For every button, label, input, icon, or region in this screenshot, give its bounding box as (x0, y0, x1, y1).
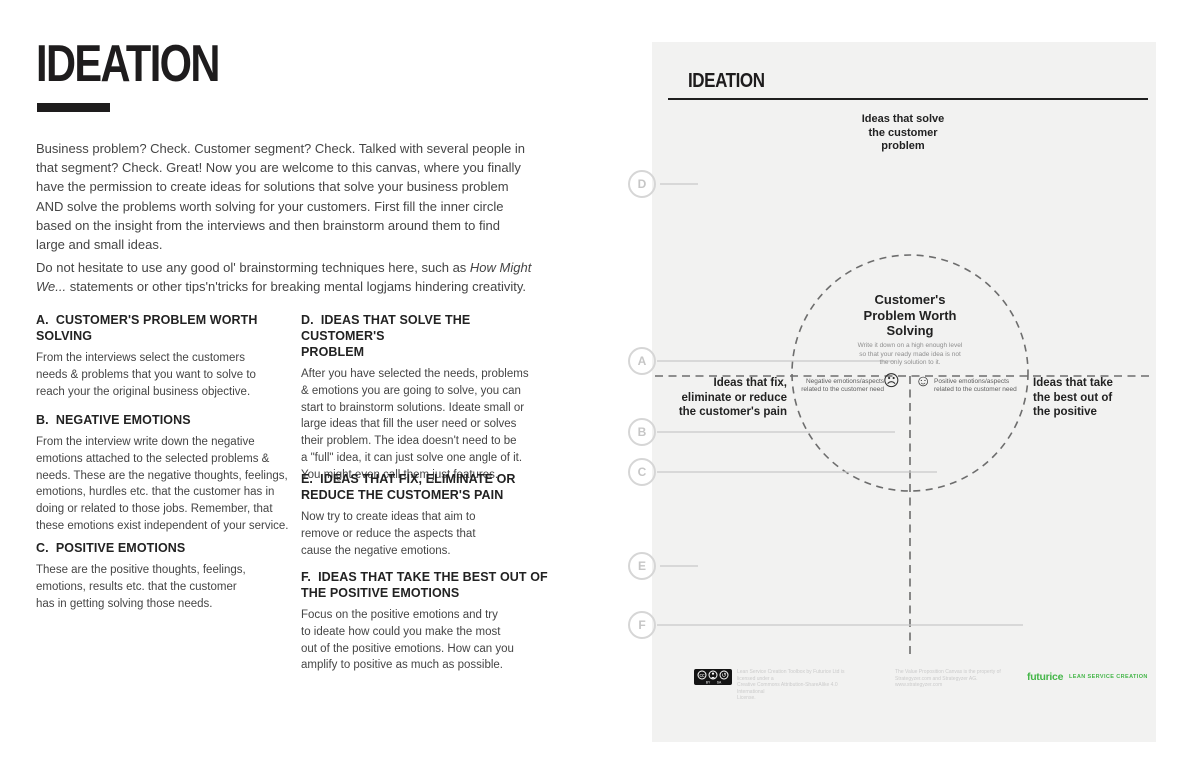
lean-service-creation-label: LEAN SERVICE CREATION (1069, 674, 1148, 680)
top-quadrant-label: Ideas that solve the customer problem (843, 113, 963, 154)
intro-2-line2-italic: We... (36, 279, 66, 294)
svg-text:cc: cc (700, 673, 706, 679)
right-quadrant-label: Ideas that take the best out of the posi… (1033, 376, 1148, 420)
section-f-body: Focus on the positive emotions and try t… (301, 607, 557, 674)
marker-b: B (628, 418, 656, 446)
svg-text:↺: ↺ (721, 672, 726, 679)
svg-text:BY: BY (706, 681, 711, 685)
marker-f: F (628, 611, 656, 639)
marker-d: D (628, 170, 656, 198)
intro-2-line2-text: statements or other tips'n'tricks for br… (66, 279, 526, 294)
marker-e: E (628, 552, 656, 580)
marker-c: C (628, 458, 656, 486)
left-quadrant-label: Ideas that fix, eliminate or reduce the … (657, 376, 787, 420)
section-a-body: From the interviews select the customers… (36, 350, 292, 400)
section-b: B. NEGATIVE EMOTIONS From the interview … (36, 412, 292, 535)
section-d: D. IDEAS THAT SOLVE THE CUSTOMER'S PROBL… (301, 312, 557, 484)
title-underline-bar (37, 103, 110, 112)
section-b-heading: B. NEGATIVE EMOTIONS (36, 412, 292, 428)
center-circle-title: Customer's Problem Worth Solving (830, 292, 990, 339)
svg-text:SA: SA (717, 681, 722, 685)
license-text: Lean Service Creation Toolbox by Futuric… (737, 669, 852, 702)
section-e-body: Now try to create ideas that aim to remo… (301, 509, 557, 559)
center-circle-subtext: Write it down on a high enough level so … (820, 342, 1000, 368)
section-c: C. POSITIVE EMOTIONS These are the posit… (36, 540, 292, 612)
section-f: F. IDEAS THAT TAKE THE BEST OUT OF THE P… (301, 569, 557, 674)
strategyzer-credit-text: The Value Proposition Canvas is the prop… (895, 669, 1010, 689)
section-e: E. IDEAS THAT FIX, ELIMINATE OR REDUCE T… (301, 471, 557, 559)
intro-2-line1-text: Do not hesitate to use any good ol' brai… (36, 260, 470, 275)
section-e-heading: E. IDEAS THAT FIX, ELIMINATE OR REDUCE T… (301, 471, 557, 503)
creative-commons-icon: cc ↺ BY SA (694, 669, 732, 685)
section-c-body: These are the positive thoughts, feeling… (36, 562, 292, 612)
section-d-body: After you have selected the needs, probl… (301, 366, 557, 484)
marker-a: A (628, 347, 656, 375)
futurice-logo: futurice (1027, 671, 1063, 683)
intro-paragraph-1: Business problem? Check. Customer segmen… (36, 139, 571, 254)
page: IDEATION Business problem? Check. Custom… (0, 0, 1184, 764)
section-b-body: From the interview write down the negati… (36, 434, 292, 535)
section-d-heading: D. IDEAS THAT SOLVE THE CUSTOMER'S PROBL… (301, 312, 557, 360)
intro-2-line1-italic: How Might (470, 260, 531, 275)
intro-paragraph-2: Do not hesitate to use any good ol' brai… (36, 258, 571, 296)
section-a-heading: A. CUSTOMER'S PROBLEM WORTH SOLVING (36, 312, 292, 344)
section-c-heading: C. POSITIVE EMOTIONS (36, 540, 292, 556)
ideation-canvas: IDEATION Ideas that solve the customer p… (652, 42, 1156, 742)
inner-circle-dashed (792, 255, 1028, 491)
sad-face-icon: ☹ (883, 374, 900, 390)
section-f-heading: F. IDEAS THAT TAKE THE BEST OUT OF THE P… (301, 569, 557, 601)
section-a: A. CUSTOMER'S PROBLEM WORTH SOLVING From… (36, 312, 292, 400)
page-title: IDEATION (36, 38, 219, 90)
happy-face-icon: ☺ (915, 374, 931, 390)
